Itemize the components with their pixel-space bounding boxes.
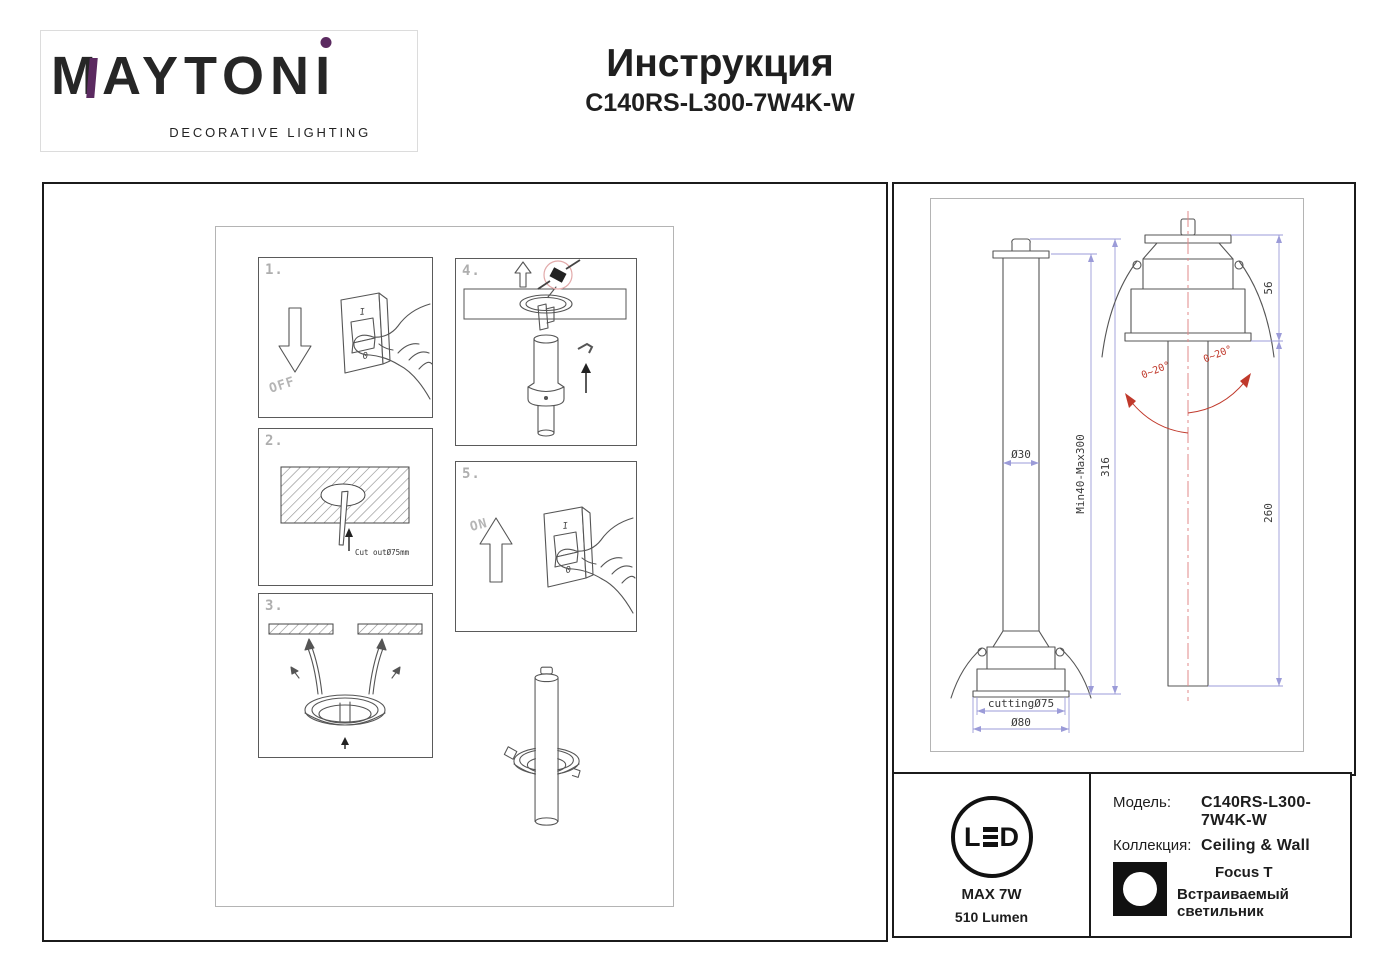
brand-wordmark: MAYTONI [51,45,336,107]
max-power: MAX 7W [894,886,1089,903]
front-dimension-arrows [973,239,1118,732]
insert-ring-illustration [259,594,432,757]
title-block: Инструкция C140RS-L300-7W4K-W [470,42,970,118]
dim-height-range: Min40-Max300 [1074,434,1087,513]
dim-flange-diameter: Ø80 [1011,716,1031,729]
document-model-number: C140RS-L300-7W4K-W [470,89,970,118]
brand-logo-block: MAYTONI DECORATIVE LIGHTING [40,30,418,152]
technical-drawing: Ø30 Min40-Max300 316 cuttingØ75 Ø80 [931,199,1303,751]
wire-connector-detail [538,260,580,289]
dim-tube-length: 260 [1262,503,1275,523]
led-letter-l: L [964,824,981,851]
brand-tagline: DECORATIVE LIGHTING [169,125,371,140]
logo-dot-accent-icon [320,37,331,48]
tilt-angle-right: 0~20° [1202,344,1234,365]
model-label: Модель: [1113,794,1201,811]
switch-on-illustration: I 0 [456,462,636,631]
tilt-angle-left: 0~20° [1140,360,1172,381]
step-4-connect-insert: 4. [455,258,637,446]
wall-switch: I 0 [341,293,390,373]
dim-cutting-hole: cuttingØ75 [988,697,1054,710]
assembled-fixture-sketch [490,660,605,845]
down-arrow-icon [279,308,311,372]
assembled-fixture-drawing [490,660,605,845]
series-text: Focus T Встраиваемый светильник [1177,862,1350,920]
collection-value: Ceiling & Wall [1201,837,1310,855]
dim-tube-diameter: Ø30 [1011,448,1031,461]
luminous-flux: 510 Lumen [894,909,1089,925]
switch-off-illustration: I 0 [259,258,432,417]
up-arrow-icon [341,737,349,749]
led-bars-icon [983,827,998,847]
tube-fill [536,678,557,822]
front-view [951,239,1091,698]
model-value: C140RS-L300-7W4K-W [1201,794,1350,830]
step-number: 4. [462,263,481,279]
ceiling-right [358,624,422,634]
collection-label: Коллекция: [1113,837,1201,854]
drawing-frame: Ø30 Min40-Max300 316 cuttingØ75 Ø80 [930,198,1304,752]
step-1-switch-off: 1. OFF I 0 [258,257,433,418]
fixture-icon-circle [1123,872,1157,906]
connector-block [549,267,566,282]
up-arrow-icon [345,528,353,551]
instruction-sheet: MAYTONI DECORATIVE LIGHTING Инструкция C… [0,0,1387,973]
up-arrow-icon [581,363,591,393]
spring-clips [291,639,400,694]
led-letter-d: D [1000,824,1020,851]
series-name: Focus T [1215,864,1350,881]
led-cell: L D MAX 7W 510 Lumen [894,774,1091,936]
connect-wires-illustration [456,259,636,445]
ceiling-left [269,624,333,634]
step-5-switch-on: 5. ON I 0 [455,461,637,632]
step-number: 1. [265,262,284,278]
side-view [1102,219,1274,686]
model-cell: Модель: C140RS-L300-7W4K-W Коллекция: Ce… [1091,774,1350,936]
up-arrow-outline-icon [515,262,531,287]
led-logo-icon: L D [951,796,1033,878]
step-number: 5. [462,466,481,482]
collection-row: Коллекция: Ceiling & Wall [1113,837,1350,855]
spec-table: L D MAX 7W 510 Lumen Модель: C140RS-L300… [892,772,1352,938]
step-3-insert-ring: 3. [258,593,433,758]
fixture-type: Встраиваемый светильник [1177,886,1350,920]
step-number: 2. [265,433,284,449]
cut-dimension-note: Cut outØ75mm [355,548,410,557]
dim-total-height: 316 [1099,457,1112,477]
hex-key-tool [578,344,592,353]
step-number: 3. [265,598,284,614]
front-dimension-lines [973,239,1121,733]
series-row: Focus T Встраиваемый светильник [1113,862,1350,920]
brand-letter-i: I [315,45,336,107]
wall-switch: I 0 [544,507,593,587]
step-2-cut-hole: 2. Cut outØ75mm [258,428,433,586]
model-row: Модель: C140RS-L300-7W4K-W [1113,794,1350,830]
mounting-ring [305,695,385,725]
cut-hole-illustration: Cut outØ75mm [259,429,432,585]
fixture-body [528,335,564,436]
document-title: Инструкция [470,42,970,86]
dim-housing-height: 56 [1262,281,1275,294]
fixture-icon [1113,862,1167,916]
